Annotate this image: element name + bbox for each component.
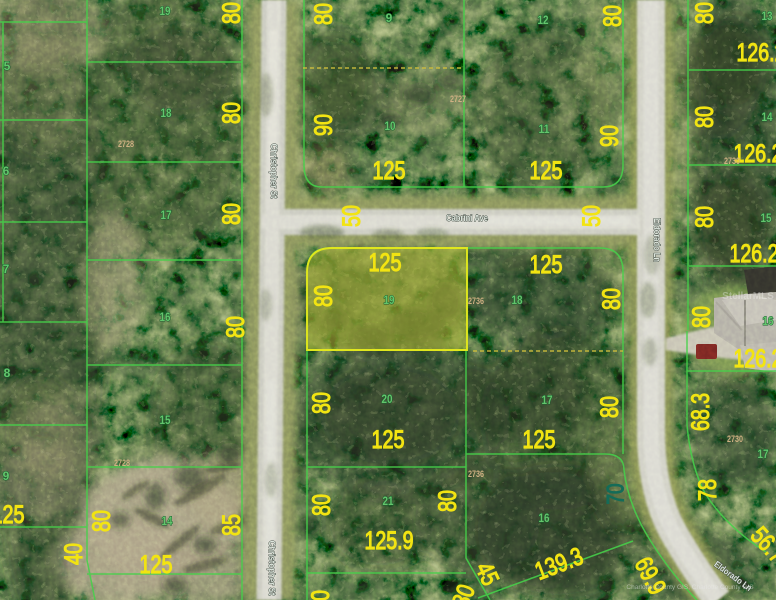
- svg-text:125: 125: [0, 501, 25, 529]
- svg-text:125.9: 125.9: [365, 527, 414, 555]
- svg-text:125: 125: [369, 249, 402, 277]
- svg-text:80: 80: [691, 106, 719, 128]
- svg-text:9: 9: [3, 469, 10, 483]
- svg-text:40: 40: [60, 543, 88, 565]
- svg-text:80: 80: [222, 316, 250, 338]
- svg-text:Charlotte County GIS, Charlott: Charlotte County GIS, Charlotte County G…: [626, 584, 754, 591]
- svg-text:80: 80: [88, 510, 116, 532]
- svg-text:19: 19: [160, 4, 171, 18]
- svg-text:125: 125: [373, 157, 406, 185]
- svg-text:80: 80: [218, 203, 246, 225]
- svg-text:18: 18: [161, 106, 172, 120]
- svg-text:StellarMLS: StellarMLS: [722, 291, 774, 302]
- svg-text:125: 125: [372, 426, 405, 454]
- svg-text:Christopher St: Christopher St: [269, 144, 279, 199]
- svg-text:90: 90: [596, 125, 624, 147]
- svg-text:21: 21: [383, 494, 394, 508]
- svg-text:16: 16: [539, 511, 550, 525]
- svg-text:90: 90: [310, 114, 338, 136]
- svg-text:13: 13: [762, 9, 773, 23]
- svg-text:80: 80: [310, 3, 338, 25]
- svg-text:125: 125: [530, 251, 563, 279]
- svg-text:17: 17: [542, 393, 553, 407]
- svg-text:80: 80: [218, 2, 246, 24]
- svg-text:80: 80: [599, 5, 627, 27]
- svg-text:80: 80: [307, 590, 335, 600]
- svg-text:6: 6: [3, 164, 10, 178]
- svg-text:80: 80: [691, 2, 719, 24]
- svg-text:78: 78: [694, 479, 722, 501]
- svg-text:80: 80: [434, 490, 462, 512]
- svg-text:Christopher St: Christopher St: [267, 541, 277, 596]
- svg-text:8: 8: [4, 366, 11, 380]
- svg-text:50: 50: [338, 205, 366, 227]
- svg-text:17: 17: [161, 208, 172, 222]
- svg-text:2730: 2730: [727, 434, 743, 444]
- svg-text:12: 12: [538, 13, 549, 27]
- svg-text:10: 10: [385, 119, 396, 133]
- svg-text:50: 50: [578, 205, 606, 227]
- svg-text:80: 80: [598, 288, 626, 310]
- svg-text:Eldorado Ln: Eldorado Ln: [652, 218, 662, 262]
- svg-text:80: 80: [308, 392, 336, 414]
- svg-text:2728: 2728: [118, 139, 134, 149]
- svg-text:126.2: 126.2: [730, 240, 776, 268]
- svg-text:80: 80: [308, 494, 336, 516]
- svg-text:11: 11: [539, 122, 550, 136]
- svg-text:80: 80: [310, 285, 338, 307]
- svg-text:80: 80: [596, 396, 624, 418]
- svg-text:2736: 2736: [468, 296, 484, 306]
- svg-text:125: 125: [523, 426, 556, 454]
- svg-text:2736: 2736: [468, 469, 484, 479]
- svg-text:17: 17: [758, 447, 769, 461]
- svg-text:85: 85: [218, 514, 246, 536]
- svg-text:19: 19: [384, 293, 395, 307]
- svg-text:70: 70: [603, 484, 630, 505]
- svg-text:18: 18: [512, 293, 523, 307]
- svg-text:5: 5: [4, 59, 11, 73]
- svg-text:16: 16: [160, 310, 171, 324]
- svg-text:2728: 2728: [114, 458, 130, 468]
- svg-text:2727: 2727: [450, 94, 466, 104]
- svg-text:14: 14: [762, 110, 773, 124]
- svg-text:16: 16: [763, 314, 774, 328]
- svg-text:2730: 2730: [724, 156, 740, 166]
- svg-text:7: 7: [3, 262, 10, 276]
- svg-text:80: 80: [691, 206, 719, 228]
- svg-text:14: 14: [162, 514, 173, 528]
- svg-text:20: 20: [382, 392, 393, 406]
- svg-text:15: 15: [761, 211, 772, 225]
- svg-text:Cabrini Ave: Cabrini Ave: [446, 213, 488, 223]
- svg-text:15: 15: [160, 413, 171, 427]
- svg-text:80: 80: [688, 306, 716, 328]
- svg-text:68.3: 68.3: [687, 393, 715, 431]
- svg-text:125: 125: [140, 551, 173, 579]
- svg-text:126.2: 126.2: [737, 39, 776, 67]
- svg-text:125: 125: [530, 157, 563, 185]
- svg-text:126.2: 126.2: [734, 345, 776, 373]
- svg-text:80: 80: [218, 102, 246, 124]
- svg-text:9: 9: [386, 11, 393, 25]
